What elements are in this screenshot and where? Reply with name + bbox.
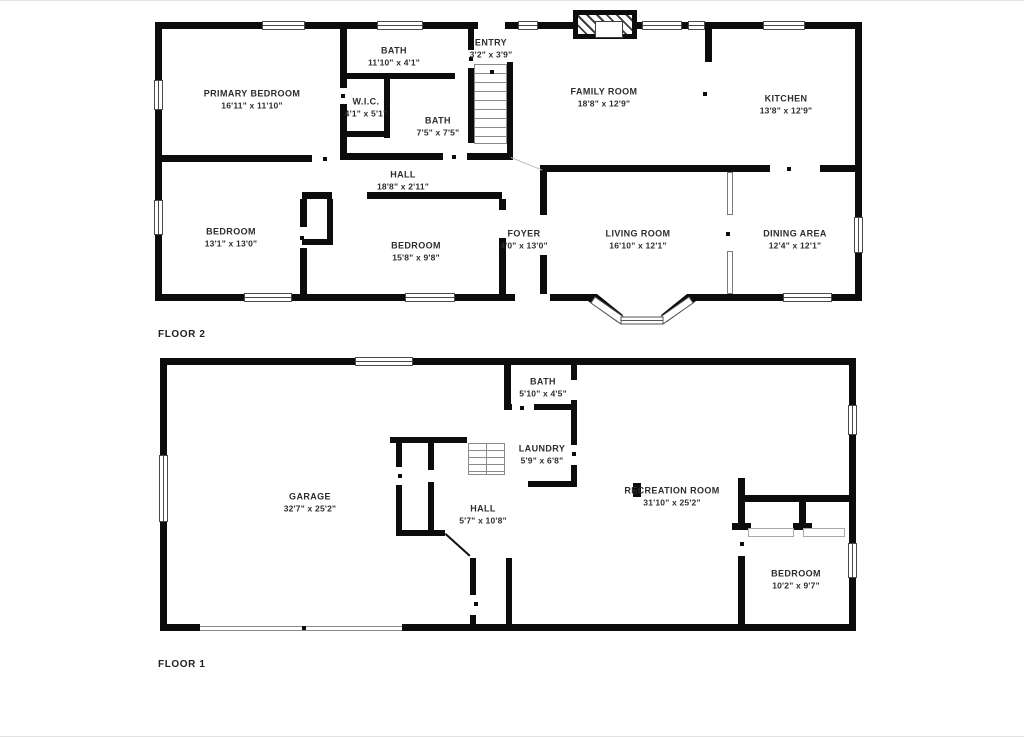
wall-segment [705, 29, 712, 62]
cased-opening [727, 172, 733, 215]
wall-segment [738, 556, 745, 631]
wall-segment [300, 199, 307, 227]
wall-tick [323, 157, 327, 161]
wall-tick [740, 542, 744, 546]
wall-segment [571, 400, 577, 445]
wall-segment [428, 482, 434, 530]
room-label-primary-bedroom: PRIMARY BEDROOM 16'11" x 11'10" [204, 89, 301, 112]
wall-tick [486, 194, 490, 198]
wall-tick [300, 236, 304, 240]
wall-segment [470, 615, 476, 631]
room-label-laundry: LAUNDRY 5'9" x 6'8" [519, 444, 565, 467]
window [154, 200, 163, 235]
wall-tick [302, 626, 306, 630]
wall-segment [738, 495, 856, 502]
closet-shelf [748, 528, 794, 537]
room-label-hall-f2: HALL 18'8" x 2'11" [377, 170, 429, 193]
wall-segment [540, 165, 547, 215]
room-label-hall-f1: HALL 5'7" x 10'8" [459, 504, 507, 527]
wall-segment [413, 358, 856, 365]
room-label-kitchen: KITCHEN 13'8" x 12'9" [760, 94, 813, 117]
wall-segment [849, 578, 856, 631]
window [377, 21, 423, 30]
wall-segment [396, 443, 402, 467]
window [642, 21, 682, 30]
wall-segment [504, 404, 512, 410]
door-swing-line [445, 533, 471, 557]
wall-segment [499, 199, 506, 210]
floorplan-canvas: PRIMARY BEDROOM 16'11" x 11'10" BATH 11'… [0, 0, 1024, 737]
wall-segment [160, 358, 167, 455]
wall-segment [543, 165, 770, 172]
room-label-wic: W.I.C. 4'1" x 5'1" [345, 97, 388, 120]
wall-segment [504, 358, 511, 410]
wall-tick [572, 452, 576, 456]
wall-segment [505, 22, 518, 29]
wall-tick [726, 232, 730, 236]
stairs-floor2 [474, 64, 507, 144]
room-label-bath-upper: BATH 11'10" x 4'1" [368, 46, 420, 69]
stairs-floor1 [468, 443, 505, 475]
wall-segment [340, 131, 390, 137]
window [159, 455, 168, 522]
window [355, 357, 413, 366]
room-label-recreation-room: RECREATION ROOM 31'10" x 25'2" [624, 486, 719, 509]
wall-tick [398, 474, 402, 478]
room-label-bath-2: BATH 7'5" x 7'5" [417, 116, 460, 139]
fireplace [573, 10, 637, 39]
wall-segment [571, 358, 577, 380]
window [854, 217, 863, 253]
wall-segment [455, 294, 515, 301]
wall-segment [855, 253, 862, 301]
window [763, 21, 805, 30]
window [848, 543, 857, 578]
wall-segment [302, 192, 332, 199]
window [262, 21, 305, 30]
window [244, 293, 292, 302]
window [405, 293, 455, 302]
wall-segment [367, 192, 502, 199]
wall-segment [160, 358, 355, 365]
wall-segment [340, 153, 443, 160]
wall-segment [705, 22, 763, 29]
window [848, 405, 857, 435]
wall-tick [452, 155, 456, 159]
wall-tick [490, 70, 494, 74]
room-label-foyer: FOYER 4'0" x 13'0" [500, 229, 548, 252]
room-label-entry: ENTRY 3'2" x 3'9" [470, 38, 513, 61]
closet-shelf [803, 528, 845, 537]
wall-tick [474, 602, 478, 606]
wall-segment [849, 358, 856, 405]
wall-segment [340, 29, 347, 88]
wall-segment [467, 153, 513, 160]
floor1-label: FLOOR 1 [158, 659, 206, 670]
door-swing-line [511, 157, 543, 171]
firebox [595, 21, 623, 38]
wall-segment [160, 522, 167, 631]
floor2-label: FLOOR 2 [158, 329, 206, 340]
page-top-border [0, 0, 1024, 1]
bay-window [570, 288, 710, 333]
wall-segment [300, 248, 307, 294]
wall-segment [155, 235, 162, 301]
room-label-bedroom-f1: BEDROOM 10'2" x 9'7" [771, 569, 821, 592]
wall-segment [340, 73, 455, 79]
cased-opening [727, 251, 733, 294]
wall-segment [506, 558, 512, 631]
wall-segment [292, 294, 405, 301]
wall-tick [520, 406, 524, 410]
wall-segment [805, 22, 862, 29]
wall-segment [538, 22, 573, 29]
wall-tick [703, 92, 707, 96]
wall-segment [155, 22, 262, 29]
window [154, 80, 163, 110]
wall-segment [855, 22, 862, 217]
room-label-bath-f1: BATH 5'10" x 4'5" [519, 377, 567, 400]
wall-segment [507, 62, 513, 160]
wall-segment [396, 530, 445, 536]
wall-segment [470, 558, 476, 595]
wall-tick [787, 167, 791, 171]
wall-segment [528, 481, 577, 487]
wall-segment [155, 155, 312, 162]
wall-segment [849, 435, 856, 543]
room-label-bedroom-mid: BEDROOM 15'8" x 9'8" [391, 241, 441, 264]
room-label-dining-area: DINING AREA 12'4" x 12'1" [763, 229, 827, 252]
wall-segment [305, 22, 377, 29]
room-label-garage: GARAGE 32'7" x 25'2" [284, 492, 337, 515]
room-label-family-room: FAMILY ROOM 18'8" x 12'9" [571, 87, 638, 110]
wall-segment [155, 294, 244, 301]
wall-segment [302, 239, 333, 245]
wall-segment [396, 485, 402, 536]
room-label-living-room: LIVING ROOM 16'10" x 12'1" [606, 229, 671, 252]
wall-segment [540, 255, 547, 294]
window [518, 21, 538, 30]
garage-door-line [200, 630, 402, 631]
window [783, 293, 832, 302]
wall-segment [820, 165, 862, 172]
window [688, 21, 705, 30]
room-label-bedroom-left: BEDROOM 13'1" x 13'0" [205, 227, 258, 250]
garage-door-line [200, 626, 402, 627]
wall-segment [428, 443, 434, 470]
wall-segment [155, 22, 162, 80]
